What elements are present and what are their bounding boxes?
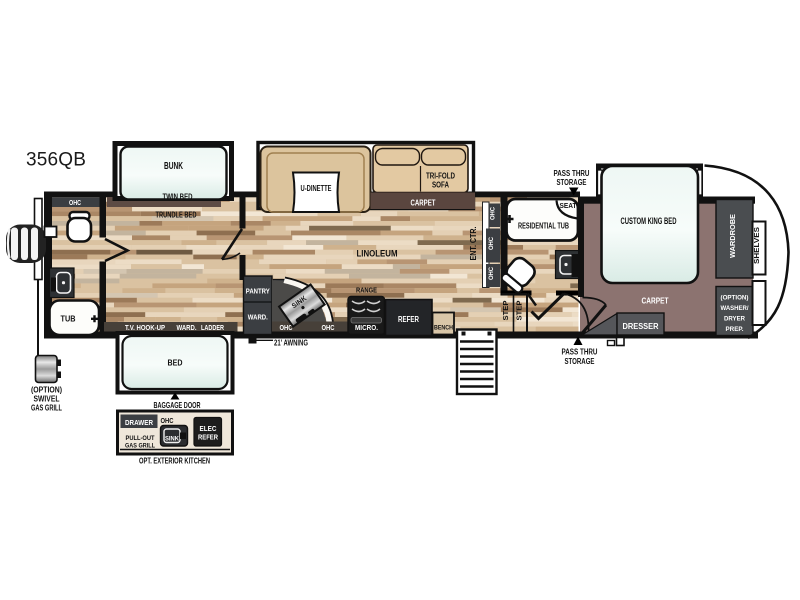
svg-text:STORAGE: STORAGE <box>565 357 595 366</box>
svg-text:WASHER/: WASHER/ <box>721 305 749 312</box>
svg-text:WARD.: WARD. <box>248 313 268 322</box>
svg-text:SHELVES: SHELVES <box>754 227 761 264</box>
svg-text:SEAT: SEAT <box>560 201 577 210</box>
svg-text:OHC: OHC <box>488 237 495 250</box>
svg-text:CARPET: CARPET <box>411 197 437 207</box>
svg-text:RESIDENTIAL TUB: RESIDENTIAL TUB <box>518 222 569 231</box>
svg-text:OHC: OHC <box>161 418 174 425</box>
svg-text:PREP.: PREP. <box>726 326 744 333</box>
svg-text:LINOLEUM: LINOLEUM <box>357 249 398 259</box>
svg-text:ENT. CTR.: ENT. CTR. <box>469 227 478 261</box>
svg-text:OHC: OHC <box>322 323 335 332</box>
svg-text:OHC: OHC <box>69 198 81 207</box>
svg-text:BED: BED <box>168 358 183 368</box>
svg-text:T.V. HOOK-UP: T.V. HOOK-UP <box>125 323 165 332</box>
svg-text:STEP: STEP <box>501 301 510 321</box>
svg-text:PANTRY: PANTRY <box>246 287 270 296</box>
svg-text:BENCH: BENCH <box>434 325 453 332</box>
svg-text:SOFA: SOFA <box>432 181 449 190</box>
svg-text:SINK: SINK <box>165 436 179 443</box>
svg-text:LADDER: LADDER <box>201 323 225 332</box>
svg-text:TWIN BED: TWIN BED <box>163 192 193 201</box>
svg-text:OPT. EXTERIOR KITCHEN: OPT. EXTERIOR KITCHEN <box>139 456 210 466</box>
svg-text:DRAWER: DRAWER <box>125 418 153 427</box>
svg-text:TRI-FOLD: TRI-FOLD <box>426 172 455 181</box>
svg-text:BUNK: BUNK <box>164 161 184 172</box>
svg-text:(OPTION): (OPTION) <box>721 295 749 302</box>
svg-text:OHC: OHC <box>488 267 495 280</box>
svg-text:STORAGE: STORAGE <box>557 178 587 187</box>
svg-text:WARDROBE: WARDROBE <box>728 214 737 258</box>
svg-text:CARPET: CARPET <box>642 296 670 306</box>
svg-text:REFER: REFER <box>198 435 218 442</box>
svg-text:U-DINETTE: U-DINETTE <box>301 183 332 193</box>
svg-text:TUB: TUB <box>61 314 76 324</box>
svg-text:MICRO.: MICRO. <box>355 323 378 332</box>
svg-text:ELEC: ELEC <box>200 426 217 433</box>
svg-text:OHC: OHC <box>489 207 496 220</box>
svg-text:CUSTOM KING BED: CUSTOM KING BED <box>621 216 677 226</box>
svg-text:SWIVEL: SWIVEL <box>34 395 60 404</box>
svg-text:PASS THRU: PASS THRU <box>554 169 590 178</box>
svg-text:GAS GRILL: GAS GRILL <box>125 443 155 450</box>
svg-text:BAGGAGE DOOR: BAGGAGE DOOR <box>154 400 201 410</box>
svg-text:STEP: STEP <box>515 301 524 321</box>
svg-text:PULL-OUT: PULL-OUT <box>126 435 156 442</box>
svg-text:356QB: 356QB <box>26 150 86 171</box>
svg-text:21' AWNING: 21' AWNING <box>274 339 308 348</box>
svg-text:DRESSER: DRESSER <box>623 322 659 331</box>
svg-text:TRUNDLE BED: TRUNDLE BED <box>156 209 197 219</box>
svg-text:RANGE: RANGE <box>356 286 377 295</box>
svg-text:WARD.: WARD. <box>177 323 197 332</box>
svg-text:GAS GRILL: GAS GRILL <box>31 404 62 413</box>
svg-text:(OPTION): (OPTION) <box>31 386 62 395</box>
svg-text:DRYER: DRYER <box>724 316 745 323</box>
svg-text:PASS THRU: PASS THRU <box>562 348 598 357</box>
svg-text:REFER: REFER <box>398 315 419 324</box>
